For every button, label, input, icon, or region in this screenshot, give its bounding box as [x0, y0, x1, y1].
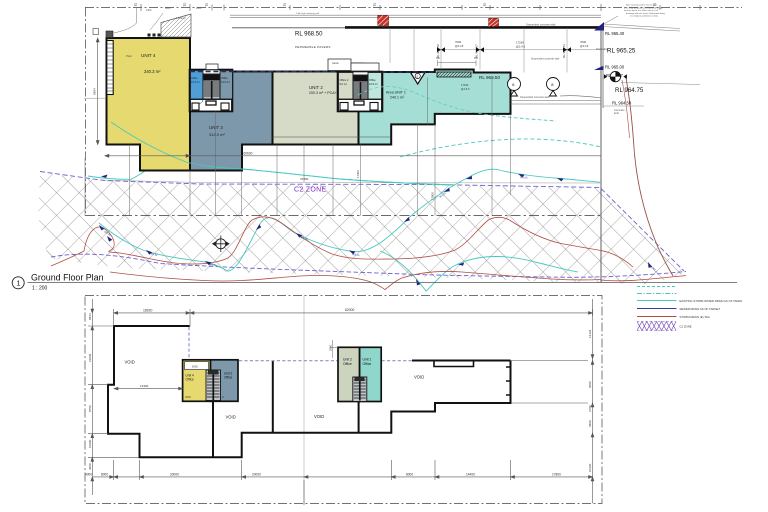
- svg-text:9.0 m²: 9.0 m²: [340, 82, 347, 86]
- svg-text:240.1 m²: 240.1 m²: [390, 96, 405, 100]
- svg-text:60600: 60600: [244, 151, 253, 155]
- svg-text:Suspended concrete slab: Suspended concrete slab: [526, 23, 556, 27]
- svg-text:Office: Office: [363, 362, 372, 366]
- svg-text:18920: 18920: [143, 309, 153, 313]
- svg-text:17800: 17800: [552, 472, 561, 476]
- svg-text:600: 600: [436, 57, 441, 60]
- svg-text:RL 968.50: RL 968.50: [479, 75, 500, 80]
- svg-text:16.5 m²: 16.5 m²: [369, 82, 378, 86]
- svg-text:Plant: Plant: [126, 54, 132, 58]
- svg-text:8750: 8750: [88, 405, 92, 412]
- svg-text:17400: 17400: [356, 170, 360, 178]
- svg-text:13300: 13300: [140, 384, 149, 388]
- svg-text:Suspended concrete slab: Suspended concrete slab: [531, 58, 560, 61]
- svg-text:STORM DRAIN (E) TAG: STORM DRAIN (E) TAG: [680, 315, 710, 319]
- svg-text:70: 70: [373, 3, 377, 7]
- svg-text:2000: 2000: [196, 7, 202, 10]
- svg-text:RL 965.25: RL 965.25: [607, 48, 636, 55]
- svg-text:EXISTING STORM WATER DRAIN AS: EXISTING STORM WATER DRAIN AS OF TAKEN: [680, 299, 743, 303]
- svg-text:drawings with site levels. Bal: drawings with site levels. Balustrade fi…: [626, 12, 666, 15]
- svg-text:Office: Office: [186, 378, 194, 382]
- svg-text:17190: 17190: [461, 83, 469, 87]
- svg-text:Office 2: Office 2: [340, 78, 349, 82]
- svg-text:5060: 5060: [165, 7, 171, 10]
- svg-text:fixed on top to suit. Refer al: fixed on top to suit. Refer also to civi…: [624, 9, 658, 12]
- svg-text:2700: 2700: [588, 405, 592, 412]
- svg-text:C2 ZONE: C2 ZONE: [680, 325, 692, 329]
- svg-text:VOID: VOID: [226, 415, 236, 420]
- svg-text:PERMEABLE PAVERS: PERMEABLE PAVERS: [295, 45, 331, 49]
- svg-text:UNIT 3: UNIT 3: [209, 125, 223, 130]
- svg-text:2100: 2100: [146, 9, 152, 12]
- svg-text:Office: Office: [343, 362, 352, 366]
- svg-text:VOID: VOID: [414, 375, 424, 380]
- svg-text:RL 964.50: RL 964.50: [612, 101, 632, 106]
- svg-text:Crossing: Crossing: [596, 47, 608, 51]
- svg-text:10900: 10900: [88, 439, 92, 448]
- svg-text:8864: 8864: [88, 313, 92, 320]
- svg-text:6800: 6800: [588, 420, 592, 427]
- svg-text:SEWER DRAIN AS OF TARGET: SEWER DRAIN AS OF TARGET: [680, 307, 721, 311]
- svg-text:20000: 20000: [170, 472, 179, 476]
- svg-text:2500: 2500: [329, 344, 333, 351]
- svg-text:8000: 8000: [406, 472, 413, 476]
- svg-text:70: 70: [134, 3, 138, 7]
- svg-text:76360: 76360: [300, 177, 309, 181]
- svg-text:RL 965.40: RL 965.40: [605, 31, 625, 36]
- svg-text:12194: 12194: [588, 329, 592, 338]
- svg-text:Office: Office: [221, 76, 228, 80]
- svg-text:to comply to pedestrian safety: to comply to pedestrian safety: [630, 15, 659, 18]
- svg-text:Suspended concrete slab: Suspended concrete slab: [520, 95, 550, 99]
- svg-text:962.00: 962.00: [520, 176, 528, 180]
- svg-text:340.3 m²: 340.3 m²: [144, 69, 161, 74]
- svg-text:23040: 23040: [88, 353, 92, 362]
- svg-text:@1:16: @1:16: [580, 44, 589, 48]
- svg-text:16.0 m²: 16.0 m²: [191, 80, 200, 84]
- svg-text:@1:4.5: @1:4.5: [516, 45, 526, 49]
- svg-text:Ground Floor Plan: Ground Floor Plan: [31, 273, 104, 283]
- svg-text:C2 ZONE: C2 ZONE: [294, 187, 326, 194]
- svg-text:RL 965.00: RL 965.00: [605, 65, 625, 70]
- svg-text:Garde: Garde: [332, 62, 339, 65]
- svg-text:312.0 m²: 312.0 m²: [209, 132, 225, 137]
- svg-text:5000: 5000: [192, 364, 198, 368]
- svg-text:to be eng. designed with balus: to be eng. designed with balustrade fixi…: [624, 6, 663, 9]
- svg-text:kerb: kerb: [614, 111, 620, 115]
- svg-text:@1:6.5: @1:6.5: [461, 87, 470, 91]
- svg-text:17800: 17800: [431, 192, 435, 200]
- svg-text:New retaining wall to max ht 1: New retaining wall to max ht 1.1m: [626, 4, 657, 7]
- svg-text:1 : 200: 1 : 200: [32, 286, 48, 292]
- svg-text:@1:16: @1:16: [455, 44, 464, 48]
- svg-text:RL 964.75: RL 964.75: [615, 87, 644, 94]
- svg-text:UNIT 2: UNIT 2: [309, 85, 323, 90]
- svg-text:70: 70: [183, 3, 187, 7]
- svg-text:1.8m high retaining wall: 1.8m high retaining wall: [296, 12, 319, 15]
- svg-text:200.3 m² + PCA+: 200.3 m² + PCA+: [309, 91, 337, 95]
- svg-text:600: 600: [474, 57, 479, 60]
- svg-text:Office: Office: [191, 76, 198, 80]
- svg-text:UNIT 4: UNIT 4: [141, 53, 156, 58]
- svg-text:RL 968.50: RL 968.50: [295, 32, 323, 38]
- svg-text:4000: 4000: [185, 395, 191, 399]
- svg-text:1: 1: [16, 279, 20, 288]
- svg-text:6884: 6884: [93, 88, 97, 95]
- svg-text:1:8 ramp: 1:8 ramp: [176, 17, 186, 20]
- svg-text:14400: 14400: [466, 472, 475, 476]
- svg-text:Office: Office: [369, 78, 376, 82]
- svg-text:6000: 6000: [588, 381, 592, 388]
- svg-text:Area UNIT 1: Area UNIT 1: [386, 91, 406, 95]
- svg-text:VOID: VOID: [314, 414, 324, 419]
- svg-text:70: 70: [205, 3, 209, 7]
- svg-text:70: 70: [283, 3, 287, 7]
- svg-text:14.0 m²: 14.0 m²: [221, 80, 230, 84]
- svg-text:20000: 20000: [252, 472, 261, 476]
- svg-text:4000: 4000: [88, 463, 92, 470]
- svg-text:62000: 62000: [345, 308, 355, 312]
- svg-text:4000: 4000: [85, 472, 92, 476]
- svg-text:VOID: VOID: [125, 360, 135, 365]
- svg-text:10320: 10320: [588, 463, 592, 472]
- svg-text:Office: Office: [224, 376, 232, 380]
- svg-text:70: 70: [483, 3, 487, 7]
- svg-text:8000: 8000: [101, 472, 108, 476]
